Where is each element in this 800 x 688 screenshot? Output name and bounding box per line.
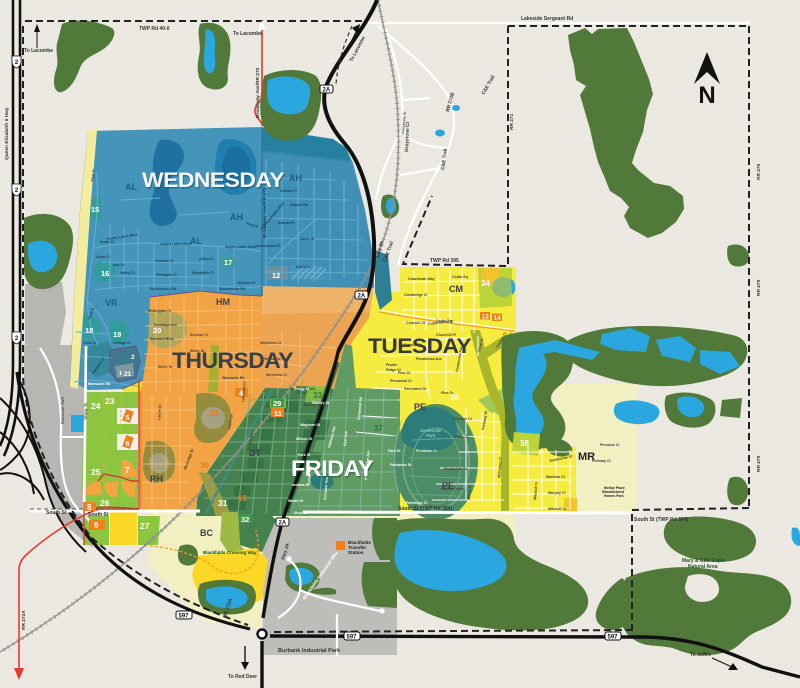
svg-text:Palisades St: Palisades St: [390, 463, 412, 467]
svg-text:Crimson Ct: Crimson Ct: [406, 321, 426, 325]
svg-text:Wilson St: Wilson St: [296, 437, 313, 441]
svg-text:Winks St: Winks St: [288, 499, 304, 503]
svg-text:Sunridge Ave: Sunridge Ave: [154, 323, 177, 327]
svg-text:Vista Cl: Vista Cl: [83, 341, 96, 345]
svg-text:38: 38: [520, 439, 529, 448]
svg-text:24: 24: [91, 401, 101, 411]
svg-text:Woodbine Cl: Woodbine Cl: [192, 271, 214, 275]
svg-text:29: 29: [273, 399, 281, 408]
svg-text:Westview Cr: Westview Cr: [266, 373, 288, 377]
svg-text:Park St: Park St: [298, 453, 311, 457]
svg-text:16: 16: [101, 269, 109, 278]
svg-text:AL: AL: [190, 236, 202, 246]
svg-text:PE: PE: [414, 402, 426, 412]
svg-text:Lakeside Sergeant Rd: Lakeside Sergeant Rd: [521, 16, 573, 22]
svg-text:Wellington Cl: Wellington Cl: [148, 309, 171, 313]
svg-text:Womacks Rd: Womacks Rd: [88, 382, 111, 386]
svg-text:Athens Pl: Athens Pl: [278, 221, 295, 225]
svg-text:Winston Pl: Winston Pl: [237, 281, 256, 285]
svg-text:2A: 2A: [358, 294, 366, 300]
svg-text:South St (TWP Rd 394): South St (TWP Rd 394): [634, 517, 688, 523]
svg-text:To Lacombe: To Lacombe: [233, 31, 262, 37]
svg-text:Pinetree Cl: Pinetree Cl: [453, 417, 472, 421]
svg-text:South St: South St: [46, 510, 67, 516]
svg-text:Station: Station: [348, 550, 364, 555]
svg-text:Cambridge Cl: Cambridge Cl: [404, 293, 427, 297]
svg-text:Arnoswood Cl: Arnoswood Cl: [256, 244, 280, 248]
svg-text:7: 7: [125, 466, 130, 475]
svg-text:20: 20: [153, 326, 161, 335]
svg-text:RR 270: RR 270: [756, 279, 762, 296]
svg-text:RR 271: RR 271: [509, 113, 515, 130]
svg-text:Shull St: Shull St: [294, 511, 308, 515]
svg-text:Park: Park: [426, 433, 436, 438]
svg-text:Prairie: Prairie: [386, 363, 397, 367]
svg-text:Palmer Circle: Palmer Circle: [441, 487, 464, 491]
svg-text:VR: VR: [105, 298, 118, 308]
svg-text:Eastpointe Dr: Eastpointe Dr: [444, 467, 468, 471]
svg-text:Westgate Cr: Westgate Cr: [156, 273, 178, 277]
svg-text:Cedar Sq: Cedar Sq: [452, 275, 468, 279]
svg-text:Mitchell Cr: Mitchell Cr: [548, 507, 567, 511]
svg-text:RR 270: RR 270: [756, 163, 762, 180]
svg-text:1: 1: [119, 371, 122, 377]
svg-text:Aspen Lakes Blvd: Aspen Lakes Blvd: [160, 242, 191, 246]
svg-text:12: 12: [272, 271, 280, 280]
svg-text:Pinewood Cl: Pinewood Cl: [390, 379, 412, 383]
svg-text:Park St: Park St: [388, 449, 401, 453]
svg-text:2A: 2A: [279, 521, 287, 527]
svg-text:Silver Dr: Silver Dr: [158, 365, 173, 369]
svg-text:Aspen Lakes Blvd: Aspen Lakes Blvd: [225, 245, 256, 249]
svg-text:BC: BC: [200, 528, 213, 538]
svg-text:Westview Cr: Westview Cr: [260, 341, 282, 345]
svg-text:37: 37: [374, 424, 383, 433]
svg-text:9: 9: [94, 521, 99, 530]
svg-text:14: 14: [494, 315, 502, 322]
svg-text:Westbrooke Rd: Westbrooke Rd: [219, 287, 245, 291]
svg-text:Broadway Ave/RR 272: Broadway Ave/RR 272: [255, 67, 261, 118]
svg-text:Womacks Rd: Womacks Rd: [222, 376, 245, 380]
svg-text:Ponderosa Ave: Ponderosa Ave: [416, 357, 442, 361]
svg-text:Sunrise Cl: Sunrise Cl: [190, 333, 208, 337]
svg-text:RR 270: RR 270: [756, 455, 762, 472]
svg-text:Pondside Cr: Pondside Cr: [416, 449, 438, 453]
svg-text:Westbrooke Rd: Westbrooke Rd: [150, 287, 176, 291]
svg-text:South St: South St: [88, 512, 109, 518]
svg-text:HM: HM: [216, 297, 230, 307]
svg-text:Adina Cl: Adina Cl: [199, 257, 214, 261]
svg-text:South St (TWP Rd 394): South St (TWP Rd 394): [398, 506, 452, 512]
svg-text:RH: RH: [150, 474, 163, 484]
svg-text:Coachman Way: Coachman Way: [408, 277, 435, 281]
svg-text:Waghorn St: Waghorn St: [300, 423, 321, 427]
svg-text:AL: AL: [125, 182, 137, 192]
svg-text:Pinnacle Cl: Pinnacle Cl: [600, 443, 619, 447]
svg-text:34: 34: [481, 279, 490, 288]
svg-text:Vista Tr: Vista Tr: [83, 402, 90, 420]
svg-text:Valley Cr: Valley Cr: [120, 271, 136, 275]
svg-text:Parkridge Cr: Parkridge Cr: [406, 501, 428, 505]
svg-text:Stanley St: Stanley St: [312, 401, 330, 405]
svg-text:11: 11: [274, 409, 282, 418]
svg-text:Gregg St: Gregg St: [294, 387, 310, 391]
svg-text:5: 5: [126, 415, 130, 422]
svg-text:To Joffre: To Joffre: [690, 652, 711, 658]
svg-text:Cyprus Rd: Cyprus Rd: [404, 343, 422, 347]
svg-text:28: 28: [209, 409, 218, 418]
svg-text:N: N: [698, 82, 715, 109]
svg-text:To Lacombe: To Lacombe: [24, 48, 53, 54]
svg-text:26: 26: [100, 498, 110, 508]
svg-text:18: 18: [85, 326, 93, 335]
svg-text:To Red Deer: To Red Deer: [228, 674, 257, 680]
svg-text:CM: CM: [449, 284, 463, 294]
svg-text:Athens Rd: Athens Rd: [290, 203, 308, 207]
svg-text:AH: AH: [230, 212, 243, 222]
svg-text:33: 33: [313, 391, 322, 400]
svg-text:Vintage Cr: Vintage Cr: [113, 341, 132, 345]
svg-text:15: 15: [91, 205, 99, 214]
svg-text:Arlen Cl: Arlen Cl: [96, 255, 110, 259]
svg-text:TWP Rd 40-0: TWP Rd 40-0: [139, 26, 170, 32]
svg-text:Panorama Dr: Panorama Dr: [404, 387, 427, 391]
svg-text:Murphy Cl: Murphy Cl: [548, 491, 566, 495]
svg-text:19: 19: [113, 330, 121, 339]
svg-text:8: 8: [87, 503, 92, 512]
svg-text:Homes Park: Homes Park: [604, 494, 624, 498]
svg-text:Burbank Industrial Park: Burbank Industrial Park: [278, 648, 341, 654]
svg-text:597: 597: [179, 614, 190, 620]
svg-text:Aztec St: Aztec St: [300, 237, 315, 241]
svg-text:597: 597: [608, 635, 619, 641]
svg-text:TWP Rd 395: TWP Rd 395: [430, 258, 459, 264]
svg-text:Blackfalds Crossing Way: Blackfalds Crossing Way: [203, 550, 257, 555]
svg-text:Pine Cr: Pine Cr: [441, 391, 454, 395]
svg-text:23: 23: [105, 396, 115, 406]
svg-text:Piper Cl: Piper Cl: [455, 435, 469, 439]
svg-text:21: 21: [124, 371, 132, 378]
svg-text:32: 32: [241, 515, 249, 524]
svg-text:2: 2: [131, 354, 135, 361]
svg-text:Westview Cr: Westview Cr: [264, 357, 286, 361]
svg-text:RR 273A: RR 273A: [21, 610, 27, 630]
svg-text:FRIDAY: FRIDAY: [291, 456, 374, 481]
svg-text:Ridge Cl: Ridge Cl: [386, 368, 401, 372]
svg-text:6: 6: [126, 441, 130, 448]
svg-text:Almond Cr: Almond Cr: [155, 259, 174, 263]
svg-text:13: 13: [482, 314, 490, 321]
svg-text:Duncan Ave: Duncan Ave: [60, 396, 66, 424]
svg-text:30: 30: [200, 461, 209, 470]
svg-text:Stanford Blvd: Stanford Blvd: [150, 337, 174, 341]
svg-text:597: 597: [347, 635, 358, 641]
svg-text:31: 31: [218, 498, 228, 508]
svg-text:27: 27: [140, 521, 150, 531]
svg-text:Portway Cl: Portway Cl: [592, 459, 611, 463]
svg-text:2A: 2A: [323, 88, 331, 94]
svg-text:10: 10: [238, 494, 247, 503]
svg-text:25: 25: [91, 467, 101, 477]
svg-text:Churchill Pl: Churchill Pl: [436, 333, 456, 337]
svg-text:Natural Area: Natural Area: [688, 564, 718, 570]
svg-text:Queen Elizabeth II Hwy: Queen Elizabeth II Hwy: [4, 107, 10, 160]
svg-text:17: 17: [224, 258, 232, 267]
svg-text:Silver Dr: Silver Dr: [190, 349, 205, 353]
svg-text:Ava Cr: Ava Cr: [113, 263, 125, 267]
svg-text:Athens Pl: Athens Pl: [280, 189, 297, 193]
svg-text:Maclean Cl: Maclean Cl: [546, 475, 565, 479]
svg-text:Aztec Cr: Aztec Cr: [296, 265, 311, 269]
svg-text:AH: AH: [289, 173, 302, 183]
